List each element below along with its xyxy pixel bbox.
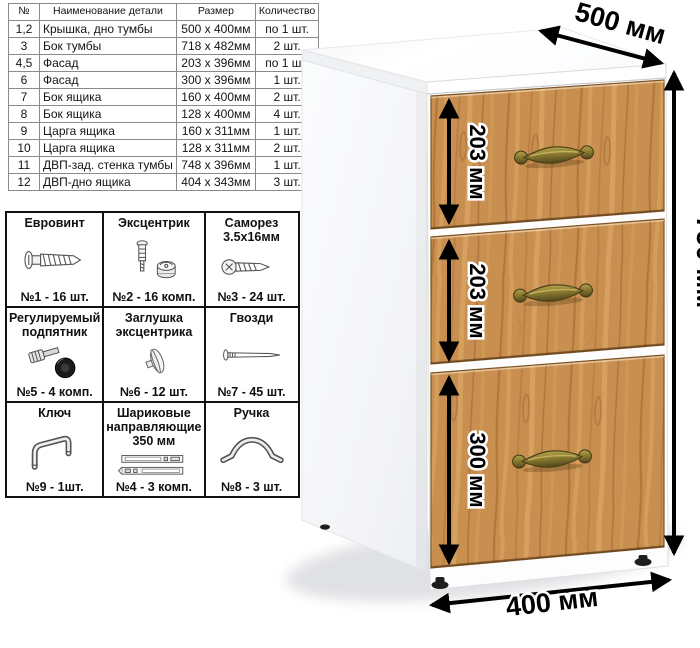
drawer-bottom-dimension-label: 300 мм — [465, 432, 490, 507]
drawer-middle-dimension-label: 203 мм — [465, 263, 490, 338]
height-dimension-label: 750 мм — [691, 216, 700, 309]
cabinet-illustration: 500 мм 750 мм 400 мм 203 мм 203 мм 300 м… — [0, 0, 700, 648]
drawer-top-dimension-label: 203 мм — [465, 124, 490, 199]
assembly-instruction-sheet: № Наименование детали Размер Количество … — [0, 0, 700, 648]
cabinet-left-side-panel — [302, 60, 427, 572]
